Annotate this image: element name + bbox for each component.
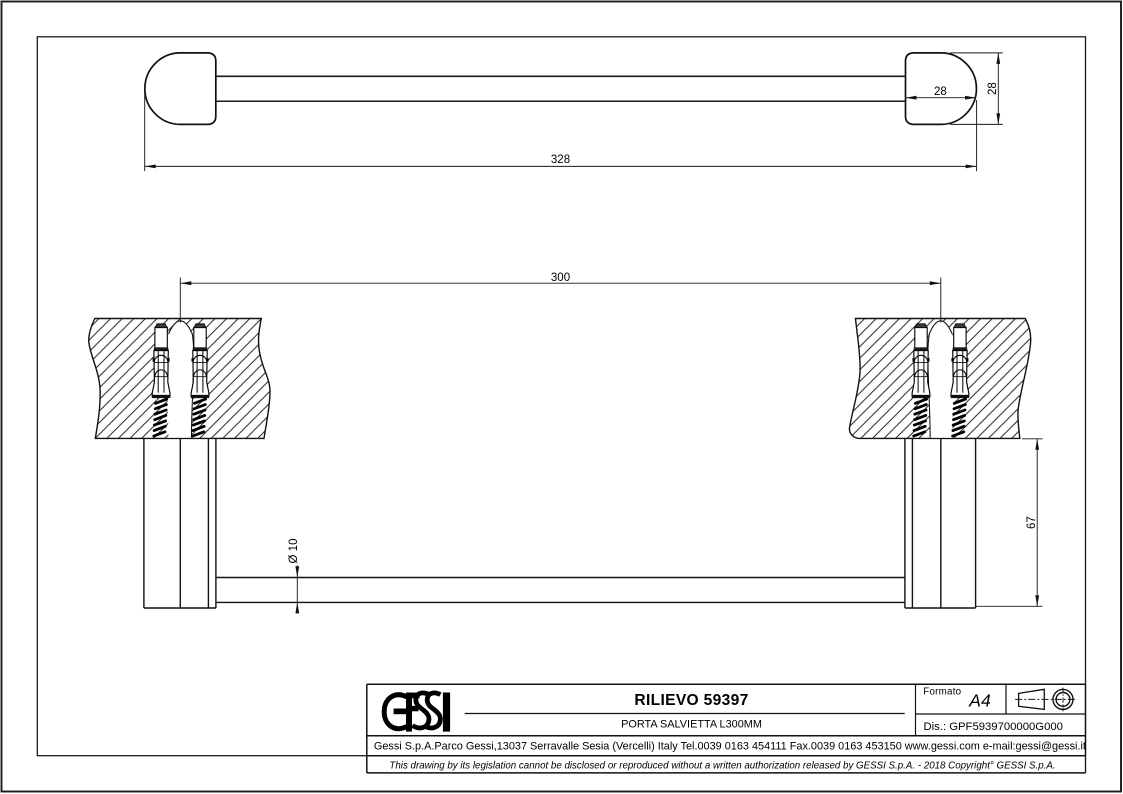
svg-text:Formato: Formato xyxy=(923,686,961,697)
svg-text:A4: A4 xyxy=(968,690,991,710)
svg-text:28: 28 xyxy=(934,86,947,98)
svg-text:RILIEVO 59397: RILIEVO 59397 xyxy=(634,692,748,709)
svg-text:This drawing by its legislatio: This drawing by its legislation cannot b… xyxy=(389,760,1055,771)
svg-text:Dis.: GPF5939700000G000: Dis.: GPF5939700000G000 xyxy=(924,721,1063,733)
svg-text:28: 28 xyxy=(987,82,999,95)
svg-text:300: 300 xyxy=(551,272,570,284)
svg-text:Ø 10: Ø 10 xyxy=(288,539,300,564)
svg-text:PORTA SALVIETTA L300MM: PORTA SALVIETTA L300MM xyxy=(621,719,762,731)
svg-text:328: 328 xyxy=(551,154,570,166)
svg-text:Gessi S.p.A.Parco Gessi,13037: Gessi S.p.A.Parco Gessi,13037 Serravalle… xyxy=(374,741,1086,753)
svg-text:67: 67 xyxy=(1026,516,1038,529)
